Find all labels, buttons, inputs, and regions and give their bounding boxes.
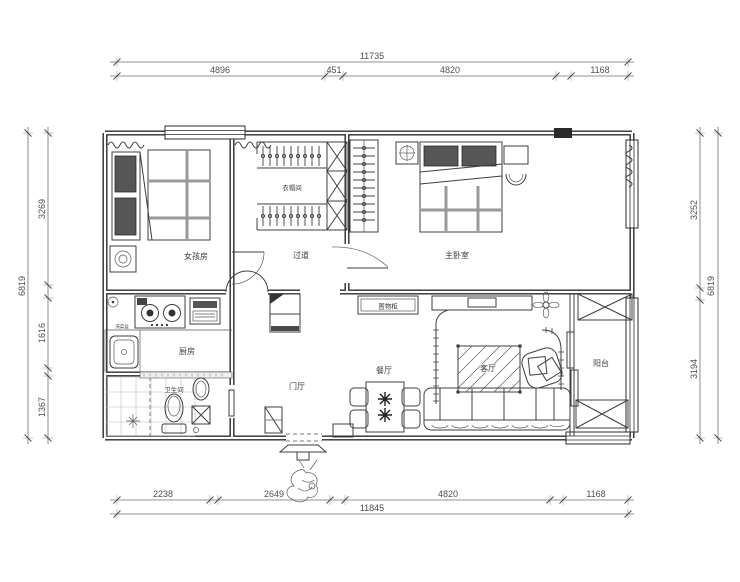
curtain-right-icon (235, 142, 271, 148)
master-door (332, 247, 388, 268)
bathroom-pocket-door (229, 390, 234, 416)
living-room: 置物柜 客厅 (358, 292, 570, 430)
window-girls-room (165, 126, 245, 139)
master-bed (420, 142, 502, 232)
dim-top-s2: 451 (326, 65, 341, 75)
table-plant-icon-2 (378, 408, 392, 422)
bathroom-tiles (106, 377, 195, 436)
entry-plant-sketch (287, 460, 318, 502)
wall-pier (554, 128, 572, 138)
dim-right-s2: 3194 (689, 359, 699, 379)
entry-threshold (286, 434, 322, 441)
balcony-cabinet-top (578, 294, 632, 320)
storage-cabinet-label: 置物柜 (378, 302, 398, 311)
microwave-icon (190, 298, 220, 324)
dimension-bottom: 2238 2649 4820 1168 11845 (110, 489, 634, 519)
dimension-right: 3252 3194 6819 (689, 127, 723, 444)
floor-plan-drawing: 11735 4896 451 4820 1168 2238 2649 4820 … (0, 0, 740, 582)
kitchen-sink-icon (110, 336, 138, 368)
partition-detail (140, 372, 232, 378)
dim-right-overall: 6819 (706, 276, 716, 296)
entry-canopy-icon (280, 445, 326, 460)
cloakroom-label: 衣帽间 (282, 183, 302, 192)
cloakroom: 衣帽间 (257, 142, 347, 230)
dim-left-s1: 3269 (37, 199, 47, 219)
armchair (519, 345, 564, 390)
bathroom: 卫生间 (106, 372, 232, 436)
hallway-label: 过道 (293, 250, 309, 260)
dining-label: 餐厅 (376, 366, 392, 375)
living-label: 客厅 (480, 363, 496, 373)
entry-label: 门厅 (289, 381, 305, 391)
curtain-left-icon (108, 142, 144, 148)
dim-top-overall: 11735 (360, 51, 384, 61)
kitchen-label: 厨房 (179, 346, 195, 356)
floor-drain-icon (126, 414, 140, 428)
shoe-cabinet-icon (265, 407, 282, 433)
dim-bottom-s1: 2238 (153, 489, 173, 499)
master-bedroom: 主卧室 (350, 140, 632, 260)
table-plant-icon (378, 392, 392, 406)
washbasin-icon (193, 378, 209, 400)
bathroom-label: 卫生间 (164, 385, 184, 394)
sink-label: 洗菜盆 (115, 323, 129, 330)
dimension-left: 6819 3269 1616 1367 (17, 127, 53, 444)
dim-bottom-s4: 1168 (586, 489, 605, 499)
sofa (424, 388, 570, 430)
doors (226, 247, 388, 441)
master-nightstand-left (396, 142, 418, 164)
walls (105, 128, 632, 438)
girls-room-door (232, 252, 264, 284)
cloakroom-hangers-bottom (261, 206, 320, 226)
toilet-icon (162, 394, 186, 433)
dim-bottom-overall: 11845 (360, 503, 384, 513)
kitchen: 洗菜盆 厨房 (105, 296, 232, 372)
fridge-icon (270, 294, 300, 332)
storage-cabinet: 置物柜 (358, 296, 418, 314)
dim-left-s3: 1367 (37, 397, 47, 417)
balcony: 阳台 (576, 294, 632, 428)
stove-icon (135, 296, 185, 328)
dim-top-s4: 1168 (590, 65, 609, 75)
balcony-cabinet-bottom (576, 400, 628, 428)
washer-shaft-icon (192, 406, 210, 433)
dim-right-s1: 3252 (689, 200, 699, 220)
master-wardrobe (350, 140, 378, 232)
girls-room-label: 女孩房 (184, 251, 208, 261)
girls-nightstand (110, 246, 136, 272)
dim-top-s1: 4896 (210, 65, 230, 75)
girls-bed (112, 150, 210, 240)
dim-top-s3: 4820 (440, 65, 460, 75)
balcony-label: 阳台 (593, 358, 609, 368)
dim-bottom-s3: 4820 (438, 489, 458, 499)
dimension-top: 11735 4896 451 4820 1168 (110, 51, 634, 81)
dim-left-s2: 1616 (37, 323, 47, 343)
window-balcony-bottom (566, 432, 630, 444)
floor-plan-canvas: 11735 4896 451 4820 1168 2238 2649 4820 … (0, 0, 740, 582)
master-dresser (504, 146, 528, 185)
tv-cabinet-icon (432, 296, 532, 310)
dining: 餐厅 (350, 310, 448, 432)
dim-bottom-s2: 2649 (264, 489, 284, 499)
master-bedroom-label: 主卧室 (445, 250, 469, 260)
cloakroom-hangers-top (261, 146, 320, 166)
fan-flower-icon (533, 292, 559, 318)
dim-left-overall: 6819 (17, 276, 27, 296)
dining-table (350, 382, 420, 432)
